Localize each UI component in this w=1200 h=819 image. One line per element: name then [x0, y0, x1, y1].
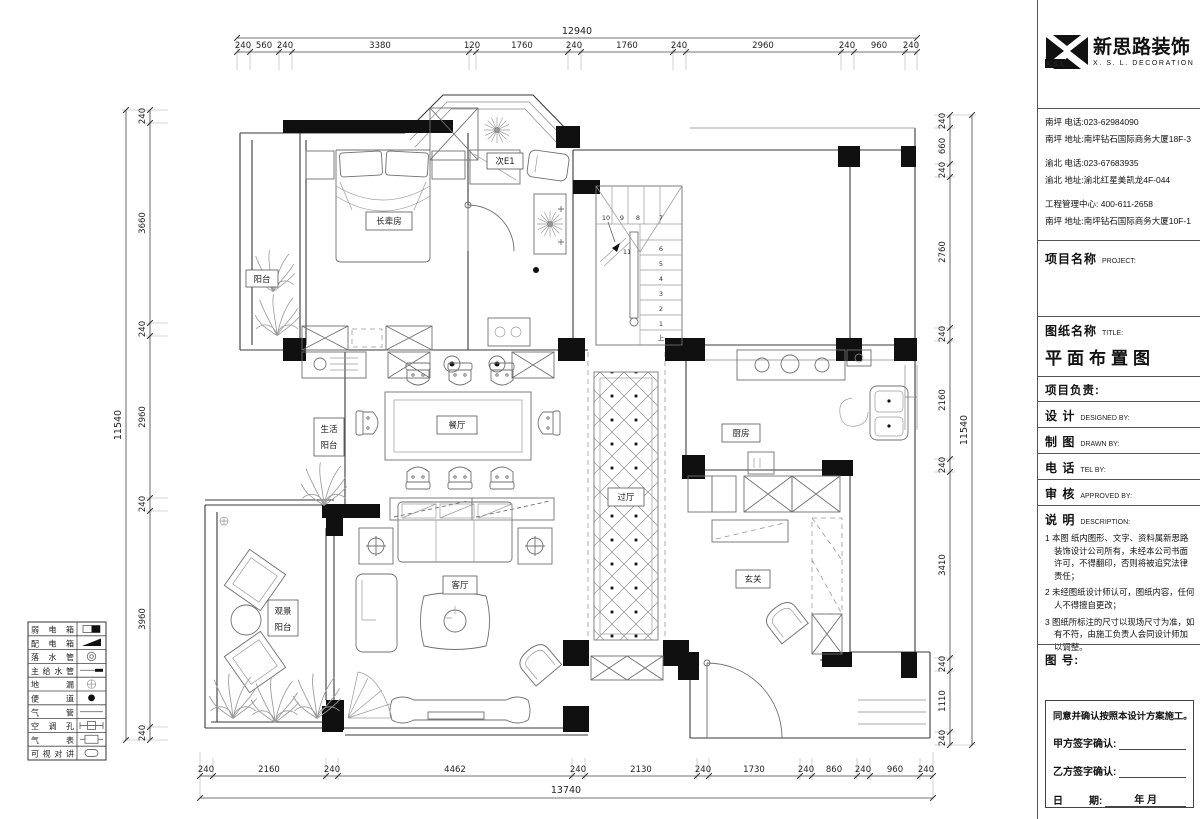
room-hallway: 过厅 — [591, 372, 663, 680]
dim-label: 1110 — [938, 690, 948, 712]
dim-label: 240 — [138, 108, 148, 124]
party-b-signature-line — [1119, 765, 1186, 778]
dim-label: 2130 — [630, 765, 652, 775]
dining-chair-icon — [406, 467, 430, 489]
party-b-label: 乙方签字确认: — [1053, 763, 1116, 778]
dim-label: 560 — [256, 41, 272, 51]
stair-number: 2 — [659, 305, 663, 313]
armchair-icon — [515, 640, 561, 686]
note-item: 1 本图 纸内图形、文字、资料属新思路装饰设计公司所有，未经本公司书面许可，不得… — [1045, 532, 1196, 582]
dim-total: 11540 — [113, 410, 124, 440]
dimension-chain-top: 12940 240 560 240 3380 120 1760 240 1760… — [234, 26, 920, 70]
room-label: 厨房 — [732, 428, 749, 439]
room-label: 阳台 — [253, 274, 270, 285]
dim-label: 240 — [798, 765, 814, 775]
dim-label: 240 — [938, 162, 948, 178]
approved-by-cn: 审 核 — [1045, 485, 1075, 502]
project-label-en: PROJECT: — [1102, 258, 1136, 265]
drawn-by-en: DRAWN BY: — [1080, 441, 1119, 448]
dimension-chain-left: 240 3660 240 2960 240 3960 240 11540 — [113, 107, 168, 743]
dim-total: 12940 — [562, 26, 592, 37]
armchair-icon — [762, 598, 808, 644]
stair-number: 1 — [659, 320, 663, 328]
tel-en: TEL BY: — [1080, 467, 1105, 474]
approved-by-en: APPROVED BY: — [1080, 493, 1132, 500]
date-row: 日 期: 年 月 — [1053, 791, 1186, 807]
dining-chair-icon — [406, 363, 430, 385]
legend-label: 弱电箱 — [31, 625, 74, 635]
xsl-logo-icon: X.S.L — [1045, 34, 1089, 70]
legend-table: 弱电箱 配电箱 落水管 主给水管 地漏 便道 气管 空调孔 气表 可视对讲 — [28, 622, 106, 760]
dim-label: 3660 — [138, 212, 148, 234]
dim-label: 2960 — [752, 41, 774, 51]
notes-section: 说 明 DESCRIPTION: 1 本图 纸内图形、文字、资料属新思路装饰设计… — [1045, 511, 1196, 653]
dimension-chain-right: 240 660 240 2760 240 2160 240 3410 240 1… — [934, 112, 976, 748]
dim-label: 2160 — [938, 389, 948, 411]
room-label: 生活 — [320, 424, 338, 435]
room-foyer: 玄关 — [688, 476, 842, 738]
staircase: 10 9 8 7 6 5 4 3 2 1 上 11 — [596, 186, 682, 345]
dim-label: 240 — [566, 41, 582, 51]
designed-by-cn: 设 计 — [1045, 407, 1075, 424]
contact-line: 南坪 电话:023-62984090 — [1045, 114, 1196, 131]
sign-agree-text: 同意并确认按照本设计方案施工。 — [1053, 708, 1186, 722]
dim-label: 240 — [138, 725, 148, 741]
dim-label: 2760 — [938, 241, 948, 263]
designed-by-en: DESIGNED BY: — [1080, 415, 1129, 422]
date-label-left: 日 — [1053, 792, 1063, 807]
dim-label: 240 — [918, 765, 934, 775]
dim-label: 240 — [839, 41, 855, 51]
mirror-burst-icon — [537, 211, 563, 237]
tel-row: 电 话 TEL BY: — [1045, 459, 1196, 476]
company-name-en: X. S. L. DECORATION — [1093, 60, 1194, 67]
dim-label: 240 — [695, 765, 711, 775]
drawn-by-row: 制 图 DRAWN BY: — [1045, 433, 1196, 450]
party-a-signature-line — [1119, 737, 1186, 750]
title-block: X.S.L 新思路装饰 X. S. L. DECORATION 南坪 电话:02… — [1037, 0, 1200, 819]
dim-label: 240 — [138, 321, 148, 337]
dim-label: 860 — [826, 765, 842, 775]
dim-label: 240 — [570, 765, 586, 775]
dining-chair-icon — [356, 411, 378, 435]
party-b-row: 乙方签字确认: — [1053, 763, 1186, 778]
stair-number: 6 — [659, 245, 663, 253]
tel-cn: 电 话 — [1045, 459, 1075, 476]
stair-number: 7 — [659, 214, 663, 222]
dim-total: 13740 — [551, 785, 581, 796]
dim-total: 11540 — [959, 415, 970, 445]
dim-label: 240 — [938, 113, 948, 129]
dim-label: 240 — [671, 41, 687, 51]
fan-decor-icon — [348, 672, 392, 718]
legend-label: 落水管 — [31, 652, 74, 662]
project-name-row: 项目名称 PROJECT: — [1045, 250, 1196, 267]
dim-label: 240 — [938, 326, 948, 342]
dim-label: 3410 — [938, 554, 948, 576]
room-label: 玄关 — [744, 574, 762, 585]
note-item: 2 未经图纸设计师认可，图纸内容，任何人不得擅自更改； — [1045, 586, 1196, 611]
drawing-label-cn: 图纸名称 — [1045, 322, 1097, 339]
contact-line: 渝北 地址:渝北红星美凯龙4F-044 — [1045, 172, 1196, 189]
plant-icon — [301, 462, 347, 505]
dim-label: 240 — [138, 496, 148, 512]
date-value: 年 月 — [1105, 791, 1186, 807]
dim-label: 1760 — [616, 41, 638, 51]
dim-label: 660 — [938, 138, 948, 154]
dim-label: 240 — [938, 656, 948, 672]
contact-line: 南坪 地址:南坪钻石国际商务大厦18F-3 — [1045, 131, 1196, 148]
room-label: 长辈房 — [376, 216, 402, 227]
room-view-balcony: 观景 阳台 — [209, 517, 341, 723]
contact-line: 南坪 地址:南坪钻石国际商务大厦10F-1 — [1045, 213, 1196, 230]
legend-label: 空调孔 — [31, 721, 74, 731]
room-label: 客厅 — [451, 580, 469, 591]
dimension-chain-bottom: 240 2160 240 4462 240 2130 240 1730 240 … — [197, 752, 936, 801]
stair-number: 9 — [620, 214, 624, 222]
dim-label: 240 — [198, 765, 214, 775]
notes-label-cn: 说 明 — [1045, 511, 1075, 528]
room-service-balcony: 生活 阳台 — [301, 418, 347, 506]
contact-line: 渝北 电话:023-67683935 — [1045, 155, 1196, 172]
pm-row: 项目负责: — [1045, 382, 1196, 398]
party-a-label: 甲方签字确认: — [1053, 735, 1116, 750]
project-label-cn: 项目名称 — [1045, 250, 1097, 267]
room-second-bedroom: 次E1 — [465, 149, 570, 346]
ceiling-lamp-icon — [484, 117, 510, 143]
dim-label: 2960 — [138, 406, 148, 428]
plant-icon — [251, 678, 299, 723]
room-balcony-top: 阳台 — [246, 250, 299, 335]
drawing-title: 平面布置图 — [1045, 344, 1196, 369]
room-label: 次E1 — [495, 156, 514, 167]
dim-label: 240 — [938, 457, 948, 473]
room-living: 客厅 — [348, 502, 562, 723]
contact-info: 南坪 电话:023-62984090 南坪 地址:南坪钻石国际商务大厦18F-3… — [1045, 114, 1196, 230]
room-label: 过厅 — [617, 492, 635, 503]
dim-label: 1730 — [743, 765, 765, 775]
room-label: 餐厅 — [448, 421, 466, 431]
stair-number: 8 — [636, 214, 640, 222]
drawing-label-en: TITLE: — [1102, 330, 1123, 337]
room-master-bedroom: 长辈房 — [302, 150, 520, 350]
dim-label: 4462 — [444, 765, 466, 775]
drawing-name-row: 图纸名称 TITLE: — [1045, 322, 1196, 339]
party-a-row: 甲方签字确认: — [1053, 735, 1186, 750]
floor-drain-icon — [87, 680, 95, 688]
dim-label: 240 — [938, 730, 948, 746]
stair-number: 11 — [623, 248, 631, 256]
walkway-icon — [88, 695, 95, 702]
room-kitchen: 厨房 — [722, 350, 908, 474]
dim-label: 1760 — [511, 41, 533, 51]
dim-label: 240 — [855, 765, 871, 775]
dim-label: 3380 — [369, 41, 391, 51]
drawn-by-cn: 制 图 — [1045, 433, 1075, 450]
stair-up-label: 上 — [658, 333, 665, 342]
room-label: 观景 — [274, 607, 291, 617]
plant-icon — [255, 294, 299, 335]
approved-by-row: 审 核 APPROVED BY: — [1045, 485, 1196, 502]
stair-number: 10 — [602, 214, 610, 222]
dim-label: 240 — [903, 41, 919, 51]
dim-label: 240 — [324, 765, 340, 775]
company-name-cn: 新思路装饰 — [1093, 38, 1194, 57]
brand-header: X.S.L 新思路装饰 X. S. L. DECORATION — [1045, 34, 1196, 70]
dim-label: 960 — [871, 41, 887, 51]
floor-plan-canvas: 阳台 长辈房 次E1 — [0, 0, 1037, 819]
dining-chair-icon — [490, 467, 514, 489]
dining-chair-icon — [538, 411, 560, 435]
dim-label: 2160 — [258, 765, 280, 775]
dim-label: 3960 — [138, 608, 148, 630]
note-item: 3 图纸所标注的尺寸以现场尺寸为准，如有不符，由施工负责人会同设计师加以调整。 — [1045, 616, 1196, 654]
stair-number: 3 — [659, 290, 663, 298]
plant-icon — [209, 674, 257, 719]
dining-chair-icon — [490, 363, 514, 385]
stair-number: 4 — [659, 275, 663, 283]
contact-line: 工程管理中心: 400-611-2658 — [1045, 196, 1196, 213]
notes-label-en: DESCRIPTION: — [1080, 519, 1130, 526]
room-label: 阳台 — [274, 622, 291, 633]
date-label-right: 期: — [1089, 792, 1102, 807]
dining-chair-icon — [448, 467, 472, 489]
signature-box: 同意并确认按照本设计方案施工。 甲方签字确认: 乙方签字确认: 日 期: 年 月 — [1045, 700, 1194, 808]
stair-number: 5 — [659, 260, 663, 268]
figure-number-row: 图 号: — [1045, 652, 1196, 668]
legend-label: 配电箱 — [31, 638, 74, 648]
dim-label: 240 — [277, 41, 293, 51]
designed-by-row: 设 计 DESIGNED BY: — [1045, 407, 1196, 424]
dim-label: 960 — [887, 765, 903, 775]
room-label: 阳台 — [320, 440, 337, 451]
dim-label: 240 — [235, 41, 251, 51]
logo-mark-text: X.S.L — [1046, 60, 1065, 68]
dim-label: 120 — [464, 41, 480, 51]
